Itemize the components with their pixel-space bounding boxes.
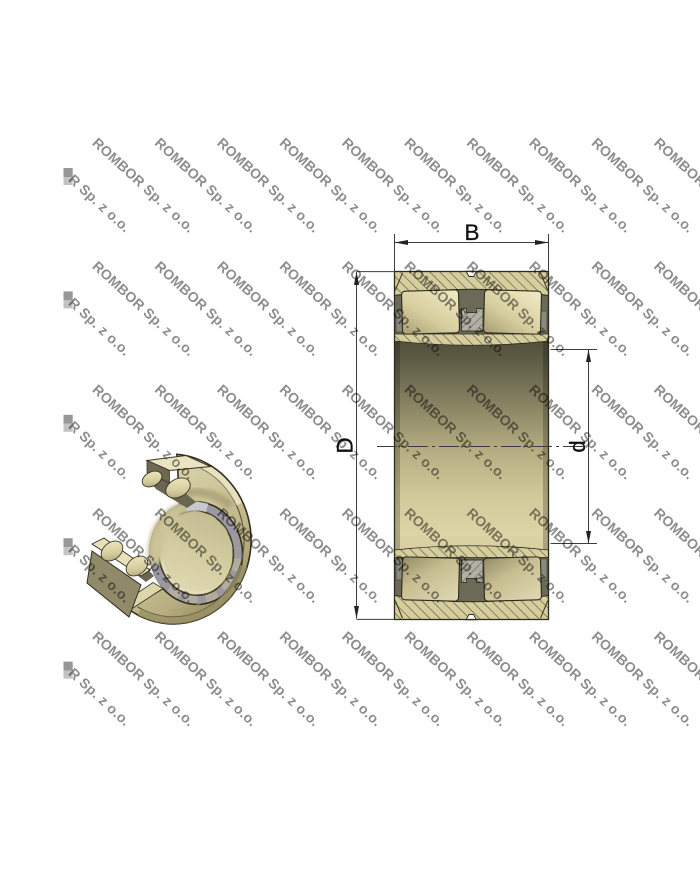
svg-text:ROMBOR Sp. z o.o.: ROMBOR Sp. z o.o. bbox=[89, 258, 198, 359]
svg-text:ROMBOR Sp. z o.o.: ROMBOR Sp. z o.o. bbox=[89, 134, 198, 235]
svg-text:B: B bbox=[464, 220, 479, 245]
svg-text:ROMBOR Sp. z o.o.: ROMBOR Sp. z o.o. bbox=[89, 381, 198, 482]
svg-text:ROMBOR Sp. z o.o.: ROMBOR Sp. z o.o. bbox=[89, 628, 198, 729]
svg-text:ROMBOR Sp. z o.o.: ROMBOR Sp. z o.o. bbox=[214, 381, 323, 482]
svg-text:ROMBOR Sp. z o.o.: ROMBOR Sp. z o.o. bbox=[589, 258, 698, 359]
svg-text:ROMBOR Sp. z o.o.: ROMBOR Sp. z o.o. bbox=[339, 134, 448, 235]
svg-text:ROMBOR Sp. z o.o.: ROMBOR Sp. z o.o. bbox=[464, 628, 573, 729]
svg-text:ROMBOR Sp. z o.o.: ROMBOR Sp. z o.o. bbox=[401, 628, 510, 729]
svg-text:R Sp. z o.o.: R Sp. z o.o. bbox=[66, 418, 134, 482]
svg-text:ROMBOR Sp. z o.o.: ROMBOR Sp. z o.o. bbox=[589, 505, 698, 606]
svg-text:ROMBOR Sp. z o.o.: ROMBOR Sp. z o.o. bbox=[339, 628, 448, 729]
svg-text:ROMBOR Sp. z o.o.: ROMBOR Sp. z o.o. bbox=[214, 258, 323, 359]
svg-text:ROMBOR Sp. z o.o.: ROMBOR Sp. z o.o. bbox=[152, 258, 261, 359]
svg-text:ROMBOR Sp. z o.o.: ROMBOR Sp. z o.o. bbox=[152, 628, 261, 729]
svg-text:ROMBOR Sp. z o.o.: ROMBOR Sp. z o.o. bbox=[526, 628, 635, 729]
svg-text:ROMBOR Sp. z o.o.: ROMBOR Sp. z o.o. bbox=[152, 134, 261, 235]
svg-text:ROMBOR Sp. z o.o.: ROMBOR Sp. z o.o. bbox=[589, 134, 698, 235]
svg-text:R Sp. z o.o.: R Sp. z o.o. bbox=[66, 665, 134, 729]
svg-text:ROMBOR Sp. z o.o.: ROMBOR Sp. z o.o. bbox=[526, 134, 635, 235]
svg-text:ROMBOR Sp. z o.o.: ROMBOR Sp. z o.o. bbox=[277, 134, 386, 235]
svg-text:R Sp. z o.o.: R Sp. z o.o. bbox=[66, 171, 134, 235]
svg-text:ROMBOR Sp. z o.o.: ROMBOR Sp. z o.o. bbox=[214, 628, 323, 729]
svg-text:ROMBOR Sp. z o.o.: ROMBOR Sp. z o.o. bbox=[214, 134, 323, 235]
svg-text:ROMBOR Sp. z o.o.: ROMBOR Sp. z o.o. bbox=[277, 505, 386, 606]
svg-text:ROMBOR Sp. z o.o.: ROMBOR Sp. z o.o. bbox=[589, 381, 698, 482]
svg-text:ROMBOR Sp. z o.o.: ROMBOR Sp. z o.o. bbox=[277, 381, 386, 482]
svg-text:ROMBOR Sp. z o.o.: ROMBOR Sp. z o.o. bbox=[589, 628, 698, 729]
svg-text:R Sp. z o.o.: R Sp. z o.o. bbox=[66, 294, 134, 358]
svg-text:ROMBOR Sp. z o.o.: ROMBOR Sp. z o.o. bbox=[401, 134, 510, 235]
svg-text:ROMBOR Sp. z o.o.: ROMBOR Sp. z o.o. bbox=[464, 134, 573, 235]
svg-text:ROMBOR Sp. z o.o.: ROMBOR Sp. z o.o. bbox=[277, 628, 386, 729]
svg-text:ROMBOR Sp. z o.o.: ROMBOR Sp. z o.o. bbox=[277, 258, 386, 359]
